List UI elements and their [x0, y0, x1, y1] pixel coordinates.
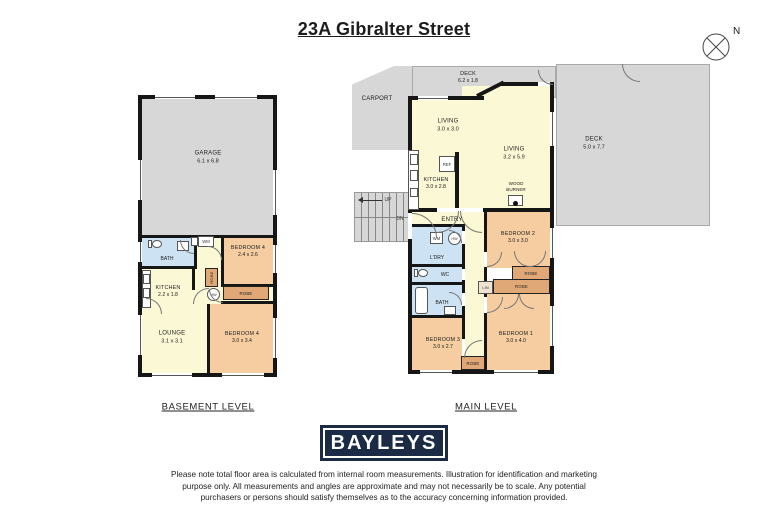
window: [273, 170, 277, 215]
door-opening: [462, 293, 465, 306]
wall: [412, 264, 465, 267]
stove-icon: [143, 288, 150, 298]
lounge-label: LOUNGE 3.1 x 3.1: [159, 330, 186, 345]
window: [155, 95, 195, 99]
garage-label: GARAGE 6.1 x 6.8: [195, 150, 222, 165]
robe-label: ROBE: [467, 361, 480, 366]
kitchen-label: KITCHEN 2.2 x 1.8: [155, 285, 180, 299]
bedroom2-label: BEDROOM 2 3.0 x 3.0: [501, 231, 535, 245]
window: [550, 228, 554, 258]
main-level-label: MAIN LEVEL: [455, 402, 517, 413]
laundry-label: L'DRY: [430, 255, 444, 262]
sink-icon: [143, 274, 150, 284]
deck-right-area: [556, 64, 710, 226]
bathtub-icon: [415, 287, 428, 314]
wood-burner-flue: [513, 201, 518, 206]
washing-machine-icon: WM: [198, 236, 214, 247]
wall: [484, 212, 487, 252]
window: [273, 245, 277, 273]
wood-burner-label: WOOD BURNER: [506, 181, 525, 193]
window: [138, 160, 142, 200]
window: [215, 95, 257, 99]
stairs-arrow: [362, 200, 382, 201]
carport-label: CARPORT: [362, 96, 393, 104]
bayleys-logo: BAYLEYS: [320, 425, 448, 461]
wall: [221, 238, 224, 284]
wall: [455, 152, 459, 210]
disclaimer-text: Please note total floor area is calculat…: [169, 469, 599, 504]
fridge-icon: REF: [439, 156, 455, 172]
bedroom3-label: BEDROOM 3 3.0 x 2.7: [426, 337, 460, 351]
window: [152, 373, 192, 377]
bedroom4b-label: BEDROOM 4 3.0 x 3.4: [225, 331, 259, 345]
bayleys-logo-text: BAYLEYS: [331, 432, 438, 455]
door-opening: [462, 231, 465, 244]
bedroom4a-label: BEDROOM 4 2.4 x 2.6: [231, 245, 265, 259]
wall: [412, 282, 465, 285]
toilet-icon: [418, 269, 428, 277]
robe-label: ROBE: [515, 284, 528, 289]
window: [138, 242, 142, 262]
page-title: 23A Gibralter Street: [298, 19, 470, 40]
living-a-label: LIVING 3.0 x 3.0: [437, 118, 458, 133]
window: [550, 306, 554, 346]
robe-label: ROBE: [209, 271, 214, 284]
window: [420, 370, 452, 374]
wall: [142, 266, 197, 269]
vanity-icon: [444, 306, 456, 315]
carport-area: [352, 66, 412, 150]
deck-top-label: DECK 6.2 x 1.8: [458, 71, 478, 85]
stairs-up-label: UP: [385, 197, 392, 204]
bath-label: BATH: [161, 256, 174, 263]
deck-right-label: DECK 5.0 x 7.7: [583, 136, 604, 151]
basement-level-label: BASEMENT LEVEL: [162, 402, 255, 413]
wall: [192, 268, 195, 290]
robe-cupboard: ROBE: [493, 279, 550, 294]
robe-label: ROBE: [240, 291, 253, 296]
robe-cupboard: ROBE: [205, 268, 218, 287]
stairs-dn-label: DN: [396, 216, 403, 223]
wc-label: WC: [441, 272, 449, 279]
window: [418, 96, 448, 100]
compass-north-label: N: [733, 26, 740, 37]
window: [138, 315, 142, 355]
stove-icon: [410, 170, 418, 181]
stairs-arrow-head: [358, 197, 363, 203]
robe-cupboard: ROBE: [223, 286, 269, 300]
entry-label: ENTRY: [441, 217, 462, 225]
main-bath-label: BATH: [436, 300, 449, 307]
living-b-label: LIVING 3.2 x 5.9: [503, 146, 524, 161]
window: [273, 318, 277, 358]
linen-cupboard: LIN: [478, 281, 493, 294]
dishwasher-icon: [410, 188, 418, 197]
robe-label: ROBE: [525, 271, 538, 276]
wall: [221, 301, 273, 304]
bedroom1-label: BEDROOM 1 3.0 x 4.0: [499, 331, 533, 345]
window: [222, 373, 264, 377]
door-opening: [462, 269, 465, 280]
floorplan-page: 23A Gibralter Street N WM ROBE HW ROBE: [0, 0, 768, 512]
robe-cupboard: ROBE: [461, 356, 485, 370]
garage-room: [142, 99, 273, 235]
sink-icon: [410, 154, 418, 165]
window: [494, 370, 538, 374]
wall: [207, 304, 210, 373]
bayleys-logo-frame: BAYLEYS: [323, 428, 445, 458]
toilet-icon: [152, 240, 162, 248]
compass-icon: [700, 26, 752, 68]
window: [550, 112, 554, 146]
wall: [412, 315, 465, 318]
main-kitchen-label: KITCHEN 3.0 x 2.8: [423, 177, 448, 191]
